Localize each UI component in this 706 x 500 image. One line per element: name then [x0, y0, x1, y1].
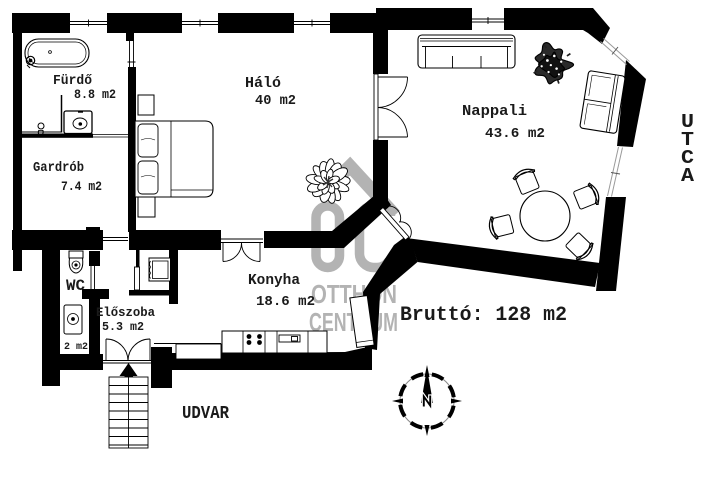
svg-text:UDVAR: UDVAR [182, 404, 229, 424]
svg-text:WC: WC [66, 277, 85, 295]
svg-text:43.6 m2: 43.6 m2 [485, 126, 545, 142]
svg-text:Nappali: Nappali [462, 103, 527, 120]
svg-text:A: A [681, 165, 695, 187]
svg-text:7.4 m2: 7.4 m2 [61, 179, 102, 194]
svg-text:2 m2: 2 m2 [64, 342, 88, 353]
svg-text:5.3 m2: 5.3 m2 [102, 320, 144, 334]
svg-text:18.6 m2: 18.6 m2 [256, 294, 315, 310]
svg-text:Bruttó: 128 m2: Bruttó: 128 m2 [400, 304, 567, 327]
svg-text:40 m2: 40 m2 [255, 93, 296, 109]
svg-text:8.8 m2: 8.8 m2 [74, 87, 116, 102]
svg-text:Háló: Háló [245, 75, 281, 92]
svg-text:Előszoba: Előszoba [96, 305, 155, 320]
svg-text:Konyha: Konyha [248, 272, 300, 289]
svg-text:Gardrób: Gardrób [33, 160, 84, 176]
